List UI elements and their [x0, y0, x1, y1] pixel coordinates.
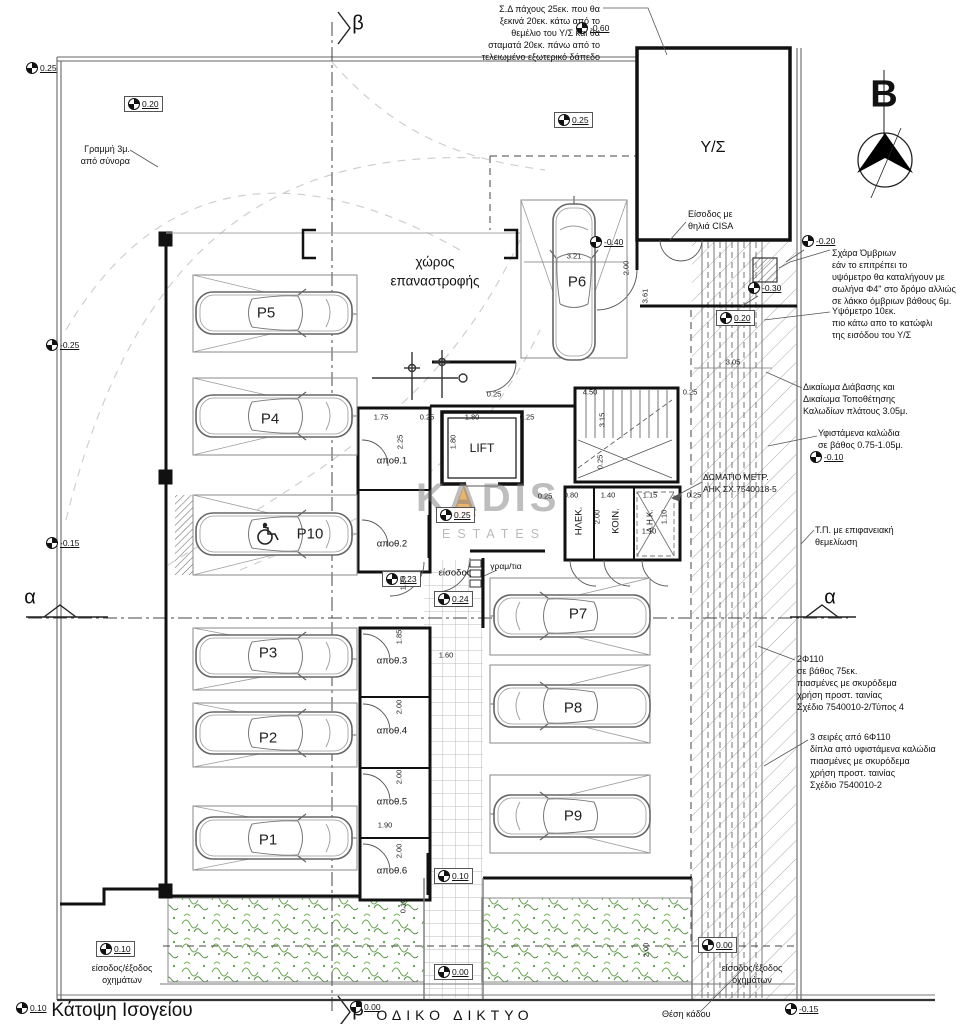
dimension-label: 0.25	[487, 390, 502, 399]
room-label-substation: Υ/Σ	[700, 139, 725, 157]
annotation-tp-foundation: Τ.Π. με επιφανειακήθεμελίωση	[815, 524, 894, 548]
gate-detail	[372, 350, 467, 400]
level-marker: -0.15	[46, 537, 79, 549]
dimension-label: 1.90	[378, 821, 393, 830]
level-marker: -0.40	[590, 236, 623, 248]
dimension-label: 1.15	[643, 491, 658, 500]
room-label-apoth4: αποθ.4	[377, 726, 407, 737]
dimension-label: 0.25	[420, 413, 435, 422]
room-label-apoth2: αποθ.2	[377, 539, 407, 550]
annotation-meter-room: ΔΩΜΑΤΙΟ ΜΕΤΡ.ΑΗΚ ΣΧ.7540018-5	[703, 471, 777, 495]
annotation-cisa-entrance: Είσοδος μεθηλιά CISA	[688, 208, 733, 232]
section-beta-top: β	[352, 13, 364, 36]
dimension-label: 3.61	[641, 289, 650, 304]
road-network-label: ΟΔΙΚΟ ΔΙΚΤΥΟ	[376, 1007, 533, 1023]
dimension-label: 3.21	[567, 252, 582, 261]
dimension-label: 2.00	[395, 700, 404, 715]
level-marker: 0.25	[554, 112, 593, 128]
dimension-label: 2.25	[396, 435, 405, 450]
dimension-label: 0.25	[683, 388, 698, 397]
room-label-lift: LIFT	[470, 441, 495, 455]
room-label-apoth1: αποθ.1	[377, 456, 407, 467]
entrance-label: είσοδος	[439, 568, 472, 579]
level-marker: 0.20	[124, 96, 163, 112]
dimension-label: 1.40	[601, 491, 616, 500]
dimension-label: 4.50	[583, 388, 598, 397]
parking-label-p4: P4	[261, 411, 279, 428]
mailboxes-label: γραμ/τια	[490, 561, 521, 571]
level-marker: -0.25	[46, 339, 79, 351]
dimension-label: 1.75	[374, 413, 389, 422]
dimension-label: 2.00	[593, 510, 602, 525]
annotation-vehicle-entry-left: είσοδος/έξοδοςοχημάτων	[80, 962, 164, 986]
ramp-wall-hatch	[175, 495, 193, 575]
parking-label-p2: P2	[259, 730, 277, 747]
annotation-threshold: Υψόμετρο 10εκ.πιο κάτω απο το κατώφλι τη…	[832, 305, 932, 341]
dimension-label: 3.15	[598, 413, 607, 428]
floor-plan-canvas: KADIS ESTATES Κάτοψη Ισογείου ΟΔΙΚΟ ΔΙΚΤ…	[0, 0, 962, 1024]
dimension-label: 2.00	[622, 261, 631, 276]
dimension-label: 2.00	[395, 844, 404, 859]
level-marker: 0.10	[16, 1002, 47, 1014]
pedestrian-walkway	[424, 560, 483, 998]
annotation-vehicle-entry-right: είσοδος/έξοδοςοχημάτων	[712, 962, 792, 986]
room-label-elek: ΗΛΕΚ.	[574, 507, 585, 536]
level-marker: 0.20	[716, 310, 755, 326]
parking-label-p5: P5	[257, 305, 275, 322]
annotation-2f110: 2Φ110σε βάθος 75εκ. πιασμένες με σκυρόδε…	[797, 653, 904, 713]
dimension-label: 1.25	[399, 576, 408, 591]
dimension-label: 0.25	[520, 413, 535, 422]
level-marker: 0.25	[26, 62, 57, 74]
parking-label-p7: P7	[569, 606, 587, 623]
section-alpha-right: α	[824, 587, 836, 610]
dimension-label: 0.25	[596, 455, 605, 470]
level-marker: -0.30	[748, 282, 781, 294]
turning-area-label-1: χώρος	[416, 255, 455, 270]
planting-strip-left	[168, 898, 424, 982]
dimension-label: 3.05	[726, 358, 741, 367]
dimension-label: 2.00	[395, 770, 404, 785]
dimension-label: 0.10	[399, 899, 408, 914]
north-letter: B	[870, 74, 897, 117]
dimension-label: 1.85	[395, 630, 404, 645]
watermark-subtext: ESTATES	[442, 527, 546, 541]
annotation-3-rows-6f110: 3 σειρές από 6Φ110δίπλα από υφιστάμενα κ…	[810, 731, 936, 791]
level-marker: 0.10	[434, 868, 473, 884]
parking-label-p1: P1	[259, 832, 277, 849]
level-marker: 0.24	[434, 591, 473, 607]
level-marker: 0.00	[434, 964, 473, 980]
level-marker: -0.20	[802, 235, 835, 247]
dimension-label: 1.10	[660, 510, 669, 525]
level-marker: 0.10	[96, 941, 135, 957]
annotation-right-of-way: Δικαίωμα Διάβασης καιΔικαίωμα Τοποθέτηση…	[803, 381, 908, 417]
room-label-apoth6: αποθ.6	[377, 866, 407, 877]
parking-label-p3: P3	[259, 645, 277, 662]
planting-strip-right	[482, 898, 692, 982]
annotation-boundary-3m: Γραμμή 3μ.από σύνορα	[40, 143, 130, 167]
room-label-apoth5: αποθ.5	[377, 797, 407, 808]
dimension-label: 1.80	[449, 435, 458, 450]
dimension-label: 2.00	[642, 943, 651, 958]
parking-label-p9: P9	[564, 808, 582, 825]
dimension-label: 1.80	[465, 413, 480, 422]
storm-grate-icon	[753, 258, 777, 282]
level-marker: -0.10	[810, 451, 843, 463]
level-marker: 0.00	[350, 1001, 381, 1013]
room-label-koin: ΚΟΙΝ.	[611, 508, 622, 534]
level-marker: 0.00	[698, 937, 737, 953]
dimension-label: 1.60	[439, 651, 454, 660]
dimension-label: 0.80	[564, 491, 579, 500]
parking-label-p6: P6	[568, 274, 586, 291]
level-marker: 0.25	[436, 507, 475, 523]
annotation-existing-cables: Υφιστάμενα καλώδιασε βάθος 0.75-1.05μ.	[818, 427, 903, 451]
dimension-label: 0.25	[538, 492, 553, 501]
annotation-storm-grate: Σχάρα Όμβριωνεάν το επιτρέπει το υψόμετρ…	[832, 247, 956, 307]
parking-label-p8: P8	[564, 700, 582, 717]
level-marker: -0.15	[785, 1003, 818, 1015]
parking-label-p10: P10	[297, 526, 324, 543]
annotation-shotcrete: Σ.Δ πάχους 25εκ. που θαξεκινά 20εκ. κάτω…	[388, 3, 600, 63]
section-alpha-left: α	[24, 587, 36, 610]
annotation-bin-location: Θέση κάδου	[662, 1008, 711, 1020]
turning-area-label-2: επαναστροφής	[390, 274, 479, 289]
dimension-label: 0.25	[687, 491, 702, 500]
room-label-apoth3: αποθ.3	[377, 656, 407, 667]
dimension-label: 1.10	[642, 527, 657, 536]
page-title: Κάτοψη Ισογείου	[51, 1000, 192, 1022]
